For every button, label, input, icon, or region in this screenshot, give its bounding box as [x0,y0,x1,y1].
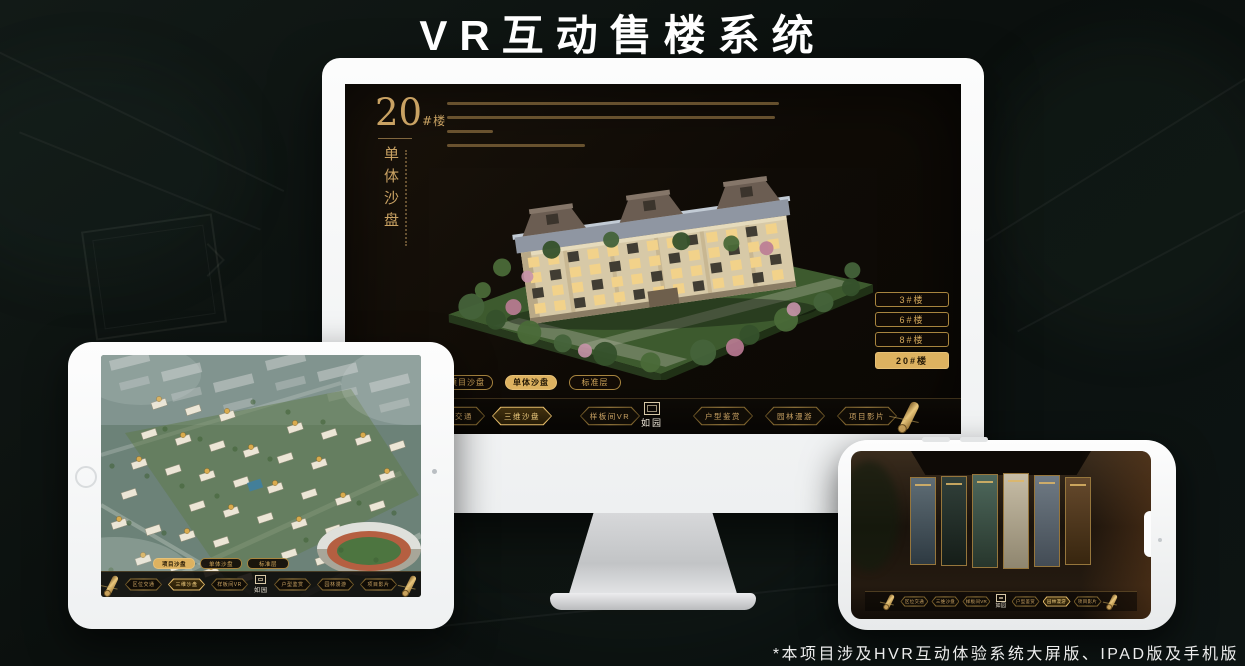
scroll-menu-icon[interactable] [884,594,895,610]
building-render [433,142,885,380]
tablet-device: 项目沙盘 单体沙盘 标准层 区位交通 三维沙盘 样板间VR 如园 户型鉴赏 园林… [68,342,454,629]
tablet-screen: 项目沙盘 单体沙盘 标准层 区位交通 三维沙盘 样板间VR 如园 户型鉴赏 园林… [101,355,421,597]
tablet-nav-location-traffic[interactable]: 区位交通 [125,578,162,591]
interior-plant-silhouette [851,461,899,571]
phone-navbar: 区位交通 三维沙盘 样板间VR 如园 户型鉴赏 园林漫游 项目影片 [865,591,1137,611]
monitor-stand-neck [568,513,738,597]
building-button-20[interactable]: 20#楼 [875,352,949,369]
nav-item-project-film[interactable]: 项目影片 [837,406,897,426]
tablet-sub-tabs: 项目沙盘 单体沙盘 标准层 [153,558,289,569]
bg-road-line [1017,190,1245,333]
scene-card[interactable] [910,477,936,565]
tablet-home-button [75,466,97,488]
phone-nav-garden-roam[interactable]: 园林漫游 [1043,596,1071,607]
app-logo-label: 如园 [630,416,674,429]
phone-notch [1144,511,1151,557]
desktop-sub-tabs: 项目沙盘 单体沙盘 标准层 [441,375,621,390]
scene-card[interactable] [1003,473,1029,569]
tablet-nav-showroom-vr[interactable]: 样板间VR [211,578,248,591]
bg-road-line [19,131,261,230]
phone-nav-showroom-vr[interactable]: 样板间VR [962,596,990,607]
app-logo-label: 如园 [254,585,268,594]
scene-card-gallery [910,471,1091,571]
tablet-nav-unit-plans[interactable]: 户型鉴赏 [274,578,311,591]
tablet-nav-3d-sandbox[interactable]: 三维沙盘 [168,578,205,591]
promo-poster: VR互动售楼系统 20#楼 单体沙盘 [0,0,1245,666]
building-selector: 3#楼 6#楼 8#楼 20#楼 [875,292,949,369]
bg-certificate [81,213,227,340]
bg-road-line [0,50,284,192]
scroll-menu-icon[interactable] [899,401,920,432]
bg-chevron [191,243,225,277]
intro-text-line [447,102,779,105]
app-logo[interactable]: 如园 [254,575,268,594]
building-number-suffix: #楼 [422,114,446,128]
phone-nav-unit-plans[interactable]: 户型鉴赏 [1012,596,1040,607]
bg-glow [0,60,240,280]
building-button-8[interactable]: 8#楼 [875,332,949,347]
phone-nav-project-film[interactable]: 项目影片 [1074,596,1102,607]
nav-item-unit-plans[interactable]: 户型鉴赏 [693,406,753,426]
scroll-menu-icon[interactable] [1106,594,1117,610]
bg-glow [980,40,1245,340]
scroll-menu-icon[interactable] [403,574,417,595]
tablet-nav-project-film[interactable]: 项目影片 [360,578,397,591]
app-logo[interactable]: 如园 [995,594,1006,609]
page-title: VR互动售楼系统 [0,2,1245,63]
heading-divider [378,138,412,139]
building-button-3[interactable]: 3#楼 [875,292,949,307]
footnote-text: *本项目涉及HVR互动体验系统大屏版、IPAD版及手机版 [773,640,1239,664]
seal-icon [255,575,266,584]
scene-card[interactable] [1034,475,1060,567]
monitor-stand-base [550,593,756,610]
seal-icon [644,402,660,415]
tablet-camera-dot [432,469,437,474]
heading-vertical: 单体沙盘 [381,146,402,276]
phone-volume-button [922,437,950,442]
app-logo-label: 如园 [995,602,1006,609]
scene-card[interactable] [941,476,967,566]
tablet-subtab-project-sandbox[interactable]: 项目沙盘 [153,558,195,569]
seal-icon [996,594,1006,602]
intro-text-line [447,116,775,119]
tablet-subtab-single-sandbox[interactable]: 单体沙盘 [200,558,242,569]
subtab-standard-floor[interactable]: 标准层 [569,375,621,390]
building-button-6[interactable]: 6#楼 [875,312,949,327]
phone-nav-3d-sandbox[interactable]: 三维沙盘 [931,596,959,607]
bg-road-line [985,60,1245,242]
intro-text-line [447,130,493,133]
scroll-menu-icon[interactable] [105,574,119,595]
building-heading: 20#楼 [375,94,446,131]
building-number: 20 [375,91,422,134]
app-logo[interactable]: 如园 [630,402,674,429]
scene-card[interactable] [1065,477,1091,565]
phone-camera-dot [1158,538,1162,542]
phone-nav-location-traffic[interactable]: 区位交通 [900,596,928,607]
phone-screen: 区位交通 三维沙盘 样板间VR 如园 户型鉴赏 园林漫游 项目影片 [851,451,1151,619]
phone-device: 区位交通 三维沙盘 样板间VR 如园 户型鉴赏 园林漫游 项目影片 [838,440,1176,630]
subtab-single-sandbox[interactable]: 单体沙盘 [505,375,557,390]
tablet-nav-garden-roam[interactable]: 园林漫游 [317,578,354,591]
tablet-subtab-standard-floor[interactable]: 标准层 [247,558,289,569]
phone-volume-button [960,437,988,442]
tablet-navbar: 区位交通 三维沙盘 样板间VR 如园 户型鉴赏 园林漫游 项目影片 [101,571,421,597]
scene-card[interactable] [972,474,998,568]
nav-item-3d-sandbox[interactable]: 三维沙盘 [492,406,552,426]
heading-vertical-caption [405,150,407,246]
nav-item-garden-roam[interactable]: 园林漫游 [765,406,825,426]
